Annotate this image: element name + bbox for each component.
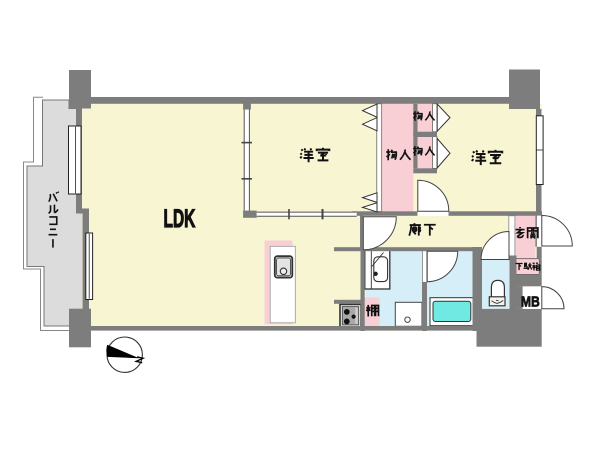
svg-text:MB: MB: [521, 293, 540, 309]
svg-text:LDK: LDK: [164, 205, 196, 233]
